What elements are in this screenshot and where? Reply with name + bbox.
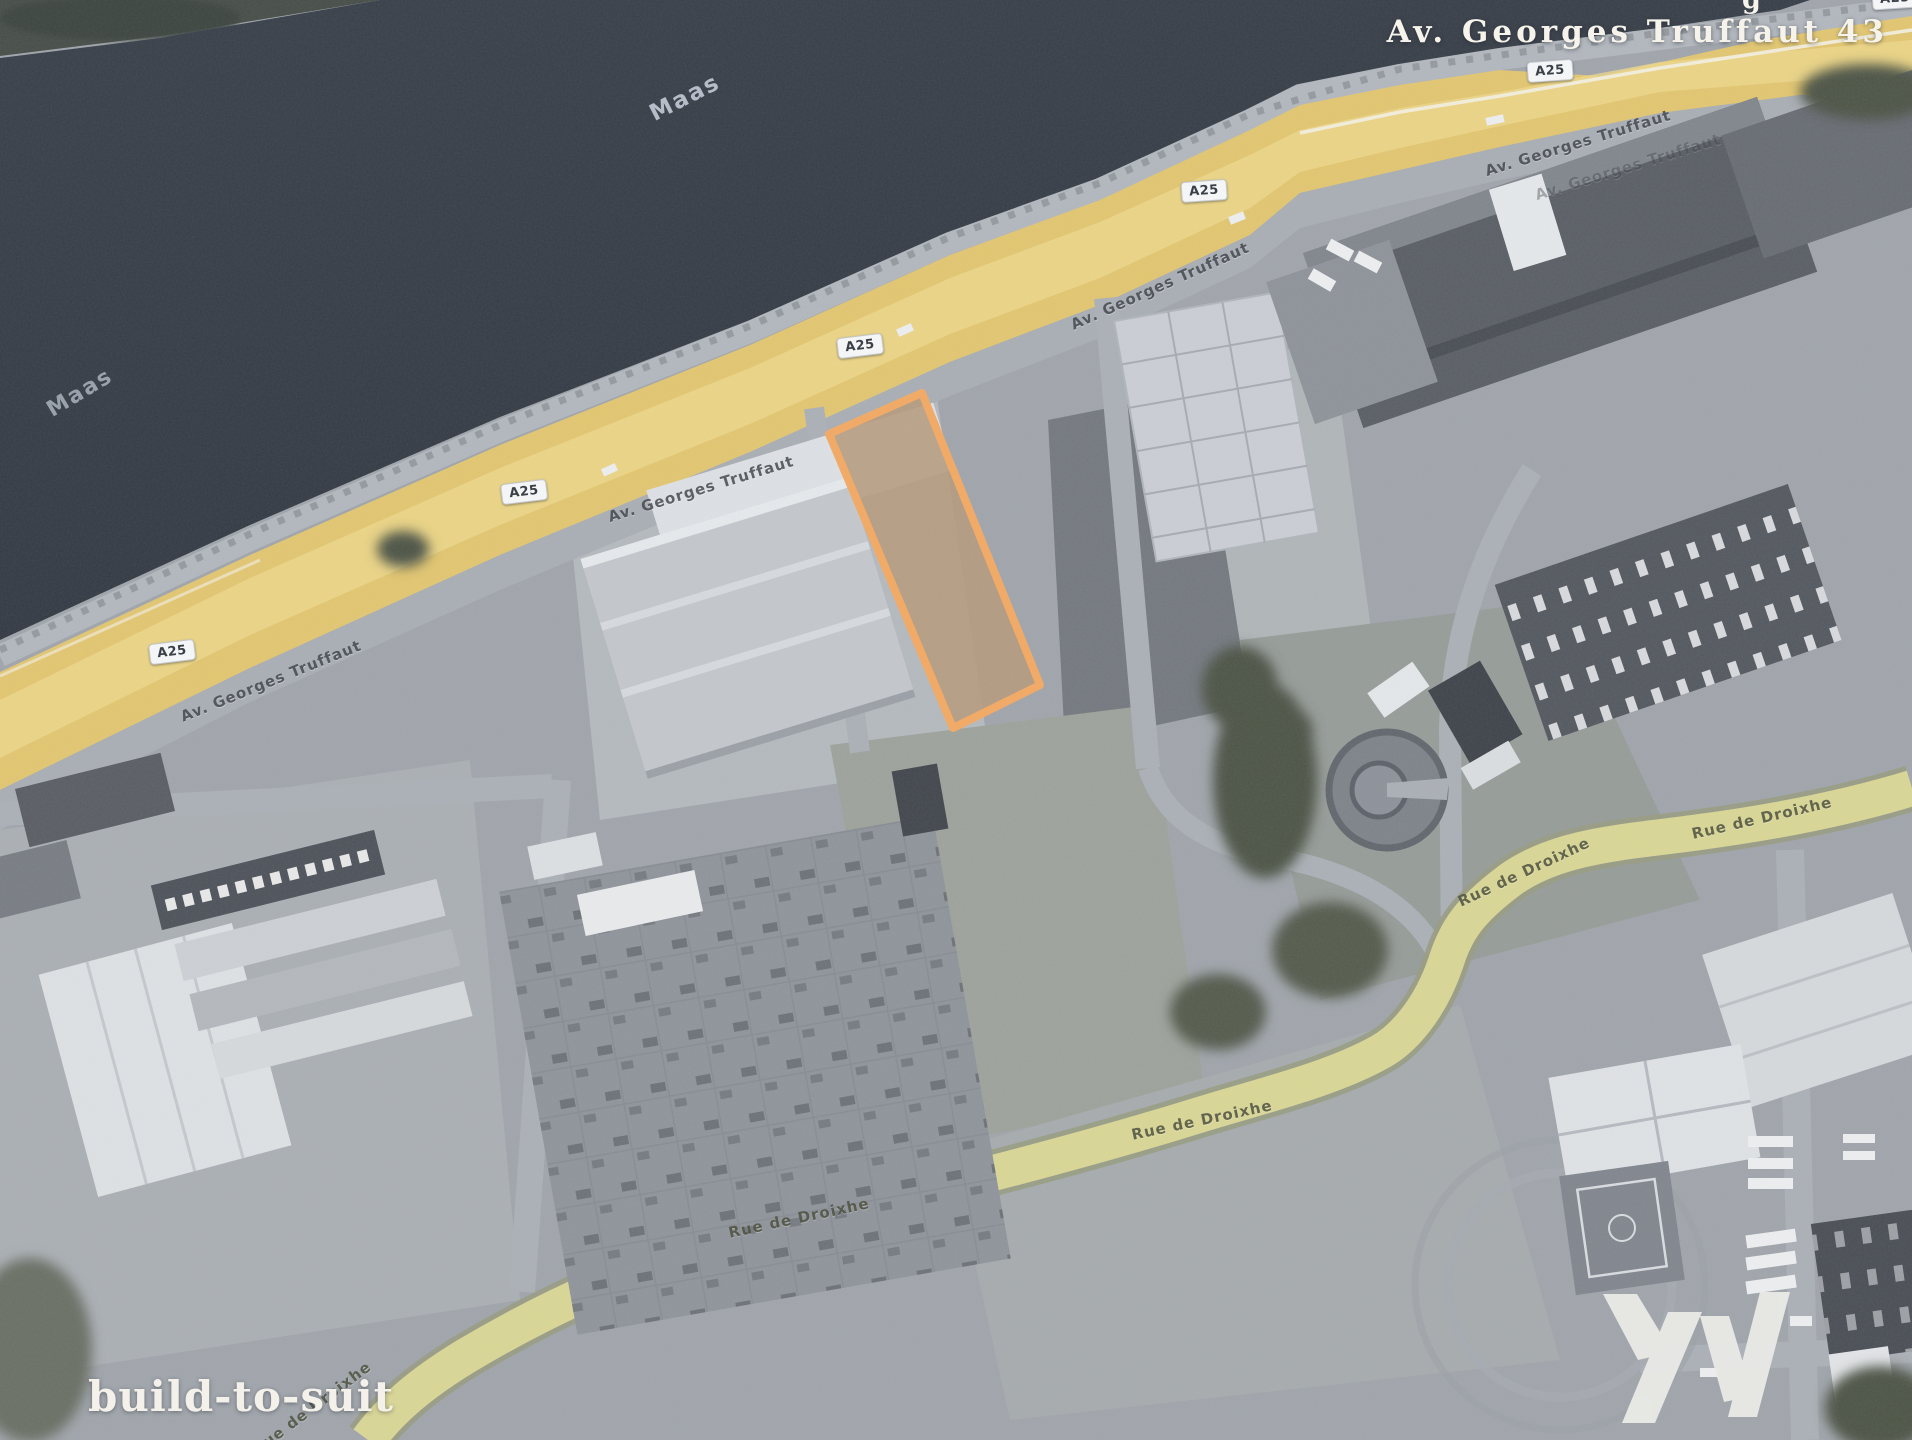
aerial-site-plan: Maas Maas Av. Georges Truffaut 43 g A25 … xyxy=(0,0,1912,1440)
route-badge-a25-1: A25 xyxy=(1526,59,1573,83)
company-logo-w-icon xyxy=(1596,1286,1796,1426)
satellite-map xyxy=(0,0,1912,1440)
top-edge-text-fragment: g xyxy=(1742,0,1761,15)
build-to-suit-watermark: build-to-suit xyxy=(88,1372,394,1421)
page-title: Av. Georges Truffaut 43 xyxy=(1387,14,1888,50)
route-badge-a25-2: A25 xyxy=(1180,179,1227,203)
photo-grain xyxy=(0,0,1912,1440)
